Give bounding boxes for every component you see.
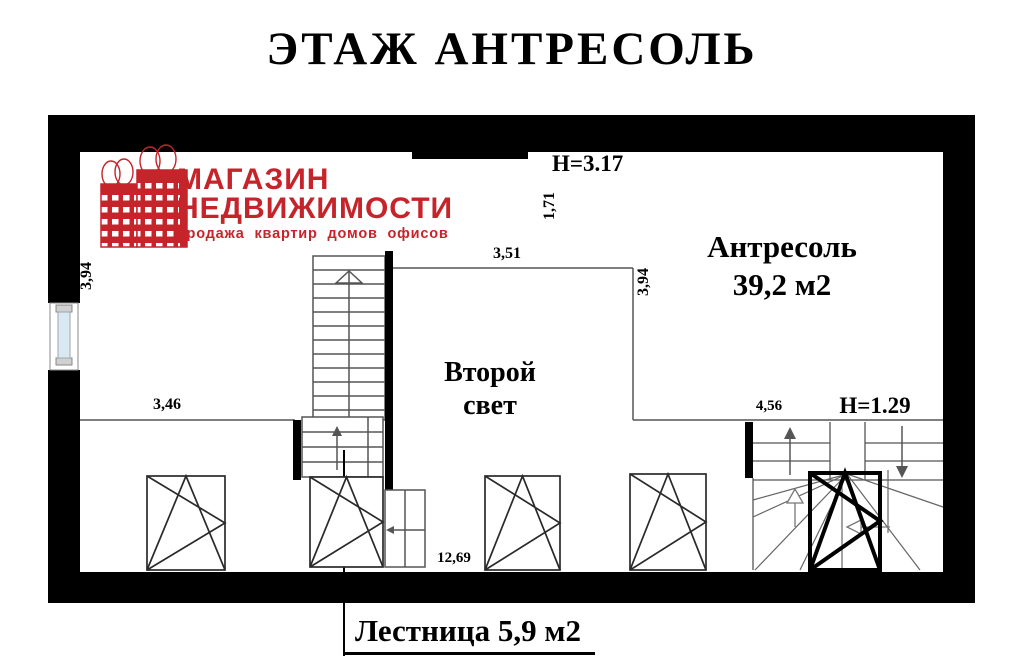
dim-4-56: 4,56 [746,399,792,414]
dim-ceiling-height-right: H=1.29 [820,394,930,417]
right-staircase [745,422,943,570]
logo-tagline: продажа квартир домов офисов [177,227,449,242]
room-area-mezzanine: 39,2 м2 [682,269,882,300]
window-icon [310,477,383,567]
room-label-second-light-2: свет [418,392,562,420]
floor-plan-page: ЭТАЖ АНТРЕСОЛЬ МАГАЗИН НЕДВИЖИМОСТИ прод… [0,0,1024,666]
logo-text-line2: НЕДВИЖИМОСТИ [177,194,453,224]
bottom-windows [147,474,706,570]
window-icon [485,476,560,570]
bold-window-icon [810,473,880,570]
dim-3-94-left: 3,94 [79,253,95,299]
dim-12-69: 12,69 [429,551,479,566]
room-label-second-light-1: Второй [418,359,562,387]
dim-1-71: 1,71 [542,183,558,229]
dim-3-51: 3,51 [484,246,530,262]
dim-3-46: 3,46 [144,397,190,413]
room-label-staircase: Лестница 5,9 м2 [345,615,595,655]
lower-staircase [293,417,383,480]
window-icon [147,476,225,570]
logo-buildings-icon [101,145,187,247]
dim-ceiling-height-main: H=3.17 [552,152,623,175]
page-title: ЭТАЖ АНТРЕСОЛЬ [0,26,1024,73]
room-label-mezzanine: Антресоль [682,231,882,262]
logo-text-line1: МАГАЗИН [177,165,329,195]
dim-3-94-right: 3,94 [636,259,652,305]
left-wall-window-icon [50,303,78,370]
small-window-icon [385,490,425,567]
window-icon [630,474,706,570]
floor-plan-drawing [0,0,1024,666]
